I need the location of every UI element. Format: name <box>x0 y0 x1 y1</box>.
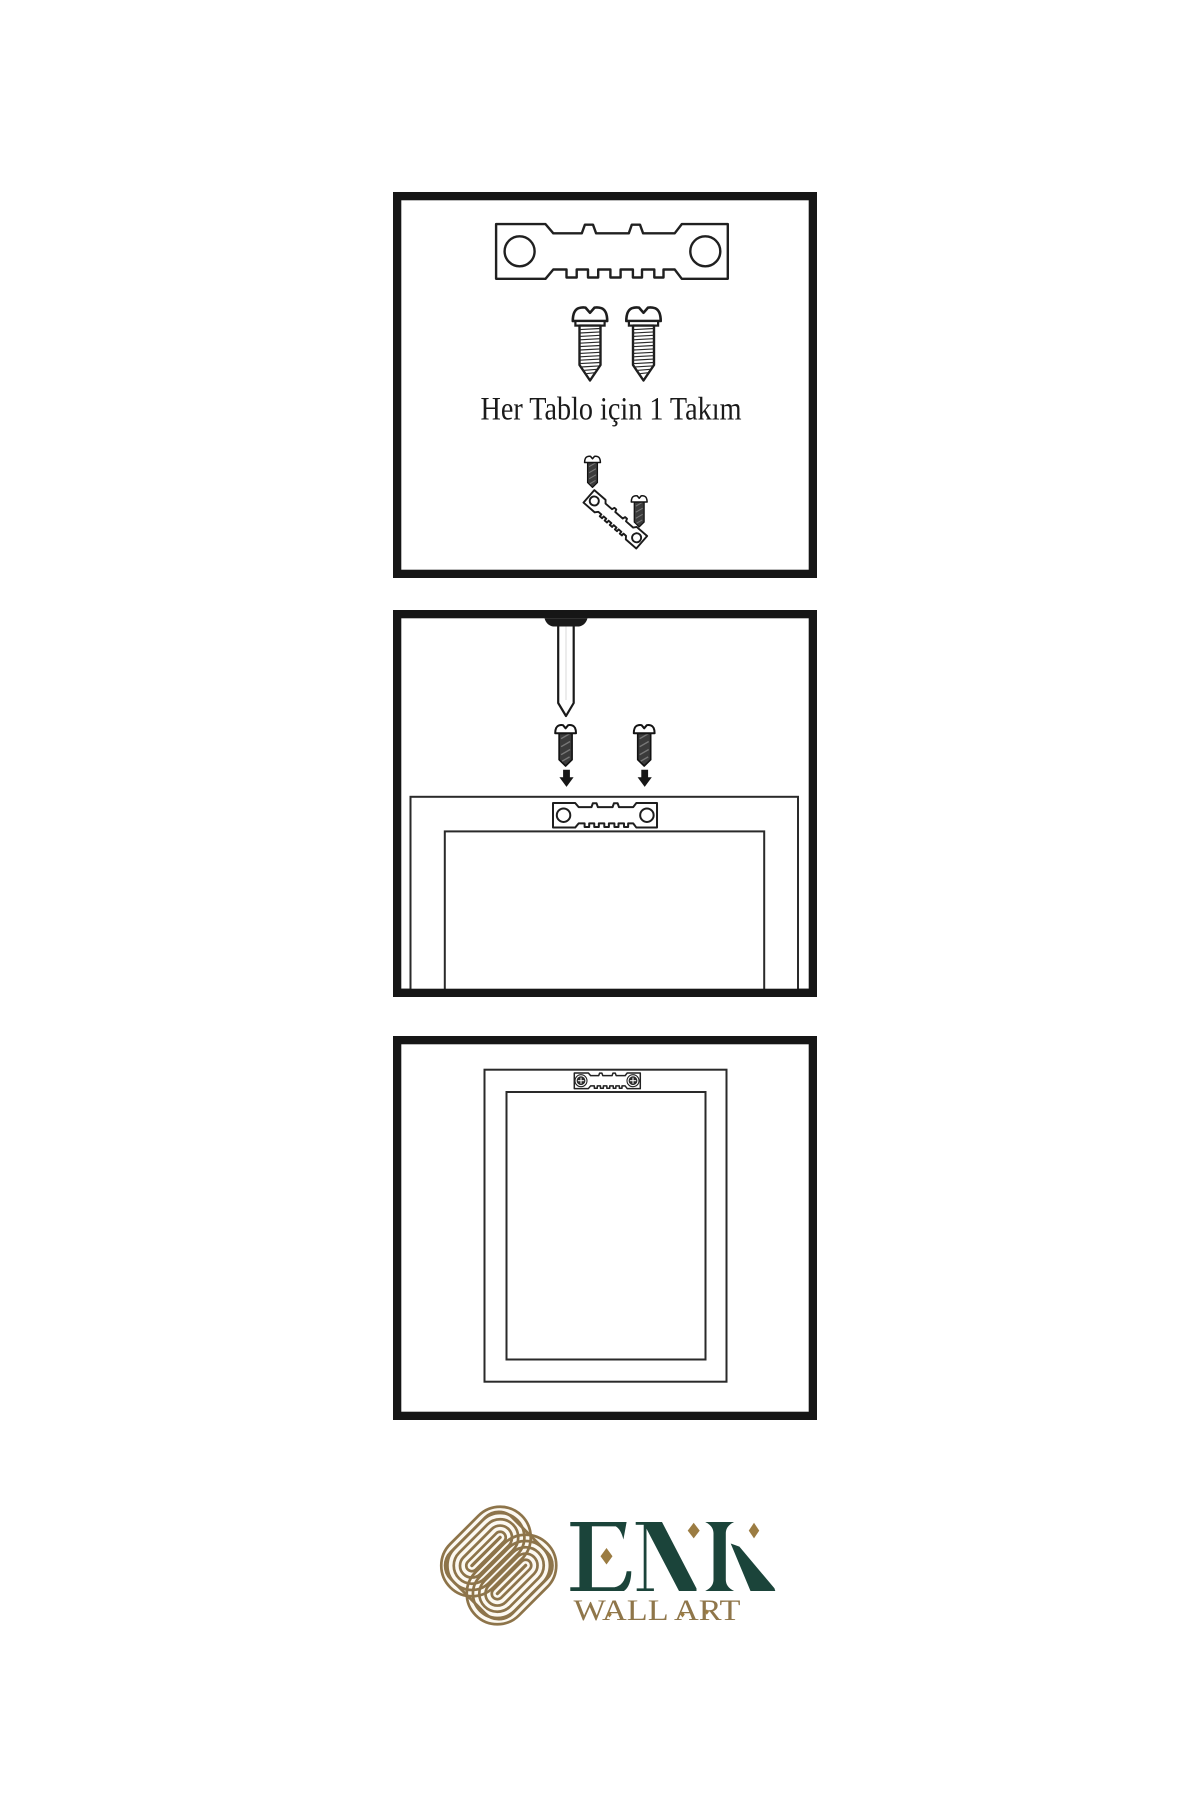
svg-text:Her Tablo için 1 Takım: Her Tablo için 1 Takım <box>481 392 742 428</box>
svg-text:WALL ART: WALL ART <box>574 1595 741 1627</box>
